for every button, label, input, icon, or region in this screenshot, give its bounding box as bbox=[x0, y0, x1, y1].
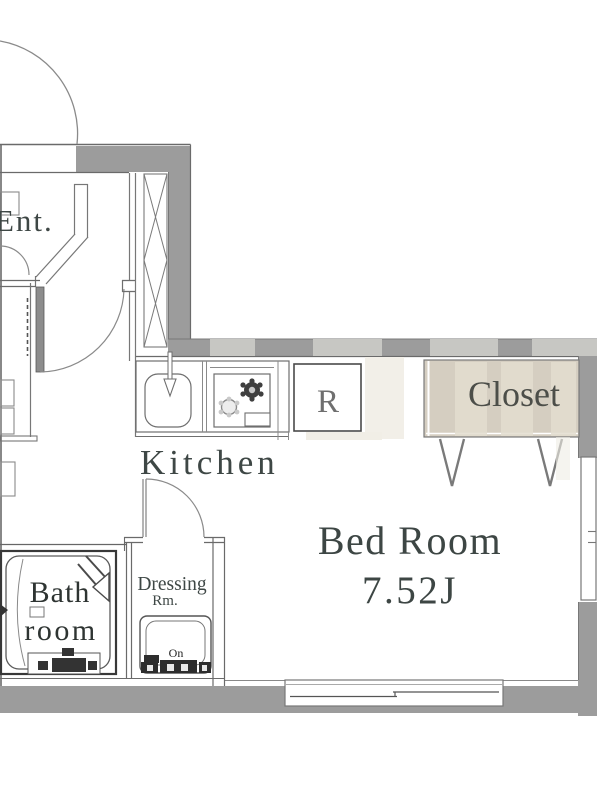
svg-text:Dressing: Dressing bbox=[137, 574, 207, 595]
svg-text:Bed Room: Bed Room bbox=[318, 518, 502, 563]
svg-text:Kitchen: Kitchen bbox=[140, 443, 279, 482]
svg-text:7.52J: 7.52J bbox=[362, 569, 458, 612]
svg-text:On: On bbox=[169, 646, 184, 660]
svg-text:room: room bbox=[24, 614, 97, 647]
svg-text:Closet: Closet bbox=[468, 374, 560, 414]
svg-text:Ent.: Ent. bbox=[0, 203, 54, 238]
svg-text:Rm.: Rm. bbox=[152, 593, 177, 609]
svg-text:R: R bbox=[317, 384, 339, 420]
svg-text:Bath: Bath bbox=[30, 576, 91, 609]
